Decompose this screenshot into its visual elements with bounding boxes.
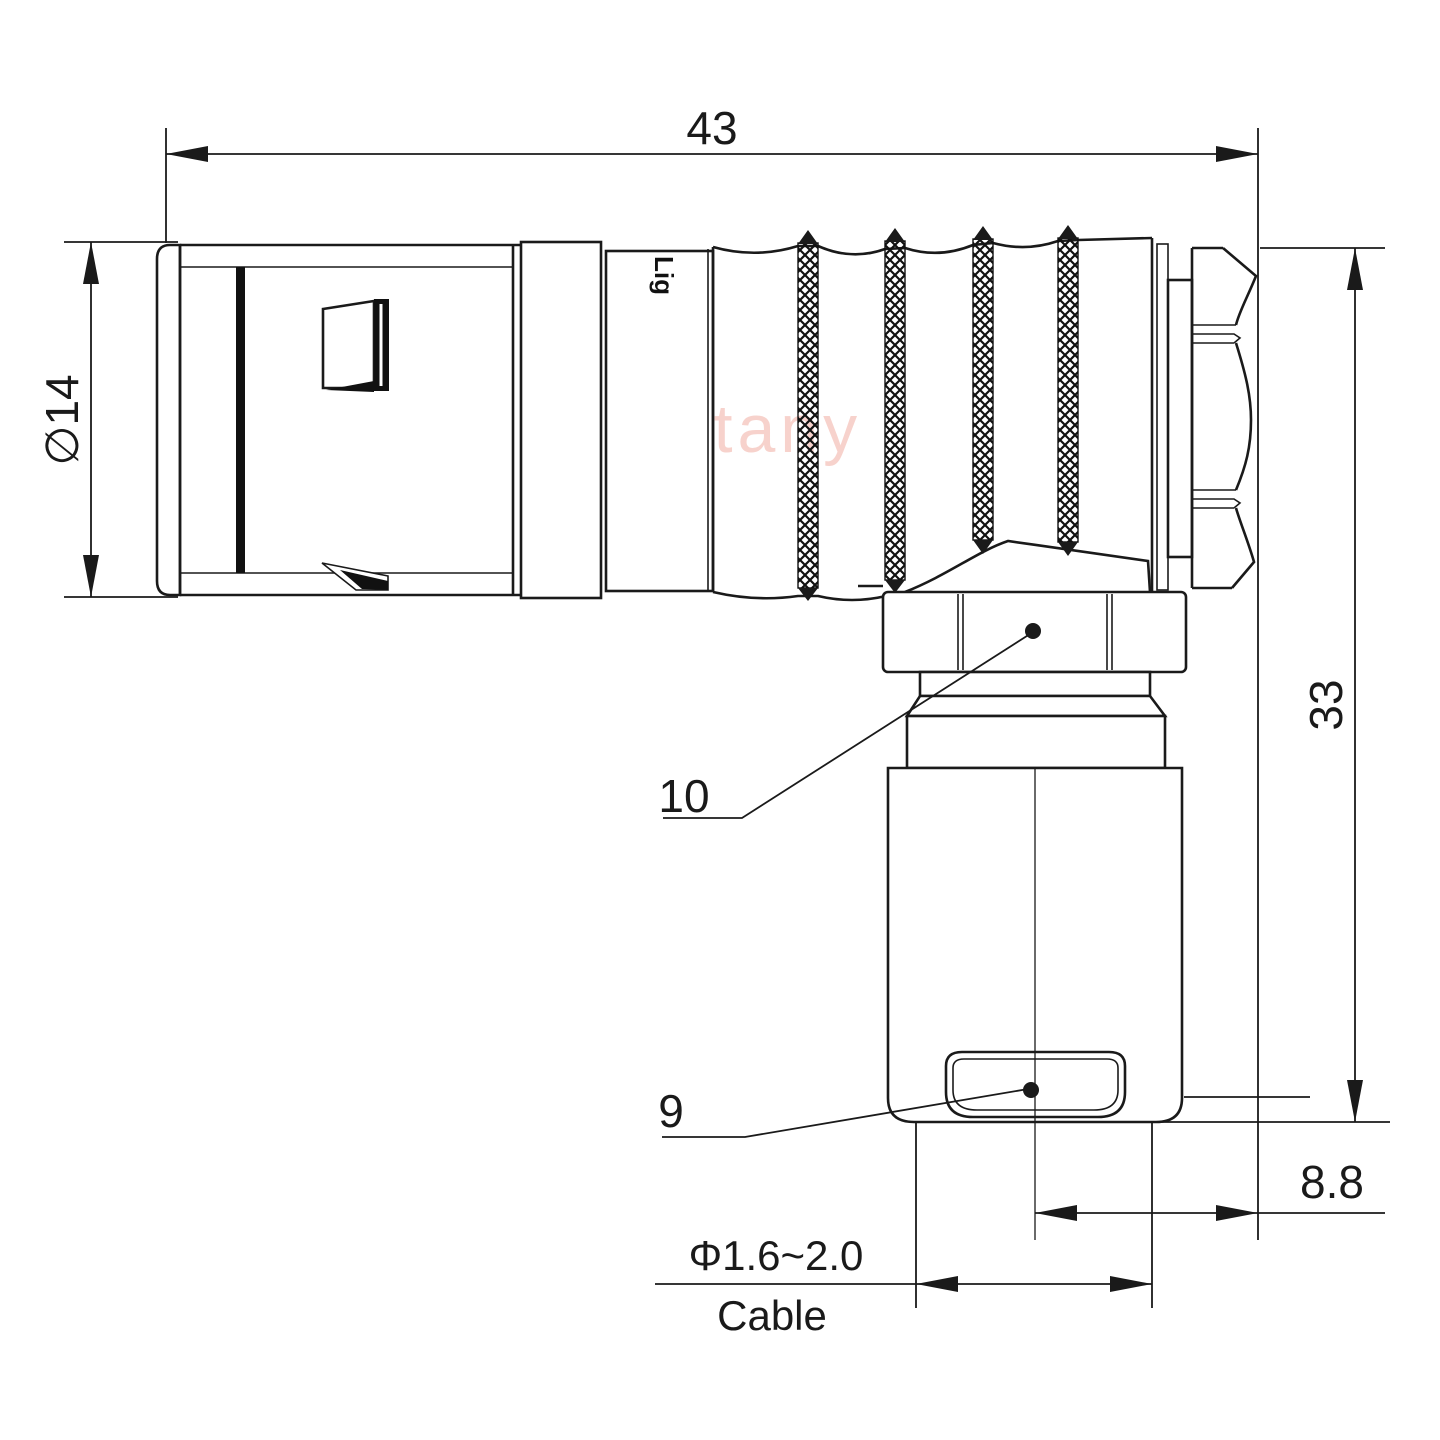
front-diameter-label: ∅14	[36, 374, 88, 465]
knurl-band	[798, 243, 818, 588]
arrowhead	[1216, 146, 1258, 162]
step-ring	[1168, 280, 1192, 557]
offset-label: 8.8	[1300, 1156, 1364, 1208]
callout-9-label: 9	[658, 1085, 684, 1137]
height-label: 33	[1300, 679, 1352, 730]
arrowhead	[1035, 1205, 1077, 1221]
arrowhead	[1347, 248, 1363, 290]
front-cap	[157, 245, 180, 595]
arrowhead	[1216, 1205, 1258, 1221]
neck-ring	[920, 672, 1150, 696]
leader-dot	[1025, 623, 1041, 639]
mid-sleeve	[606, 251, 713, 591]
technical-drawing: Lightany Lig	[0, 0, 1440, 1440]
arrowhead	[916, 1276, 958, 1292]
knurl-band	[1058, 238, 1078, 542]
overall-length-label: 43	[686, 102, 737, 154]
dimension-offset: 8.8	[1035, 1156, 1385, 1221]
arrowhead	[1347, 1080, 1363, 1122]
front-shell-band	[236, 267, 245, 573]
body-marking-text: Lig	[649, 256, 679, 295]
arrowhead	[1110, 1276, 1152, 1292]
arrowhead	[166, 146, 208, 162]
cable-diameter-label: Φ1.6~2.0	[689, 1232, 864, 1279]
cable-label: Cable	[717, 1292, 827, 1339]
callout-10-label: 10	[658, 770, 709, 822]
back-nut-notches	[1192, 325, 1240, 508]
arrowhead	[83, 555, 99, 597]
barrel-ring	[521, 242, 601, 598]
flare	[907, 696, 1165, 716]
sleeve-top-profile	[713, 238, 1152, 254]
leader-dot	[1023, 1082, 1039, 1098]
upper-gland	[907, 716, 1165, 768]
tail-ring	[1157, 244, 1168, 590]
dimension-cable: Φ1.6~2.0 Cable	[655, 1122, 1152, 1339]
connector-side-view: Lig	[157, 225, 1256, 601]
back-nut-lobes	[1223, 248, 1256, 588]
knurl-band	[973, 239, 993, 540]
knurl-band	[885, 241, 905, 580]
back-nut	[1192, 248, 1256, 588]
elbow-bend-profile	[905, 541, 1150, 592]
drawing-canvas: Lightany Lig	[0, 0, 1440, 1440]
sleeve-bottom-profile	[713, 592, 886, 600]
arrowhead	[83, 242, 99, 284]
key-tab	[323, 301, 374, 388]
elbow-lower-section	[883, 592, 1186, 1240]
